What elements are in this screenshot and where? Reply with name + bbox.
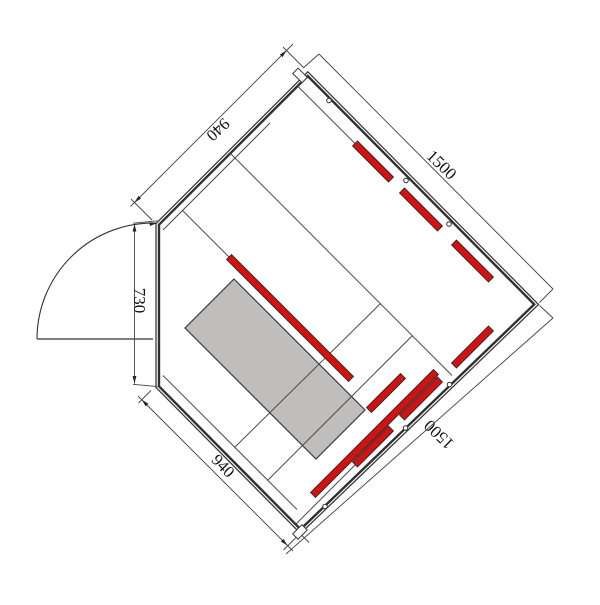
- svg-text:730: 730: [130, 288, 149, 314]
